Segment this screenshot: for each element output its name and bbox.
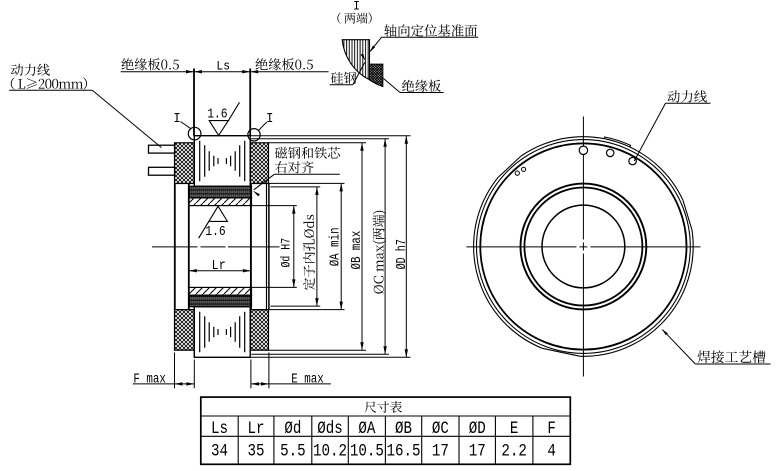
svg-text:ØB: ØB: [395, 419, 412, 439]
svg-text:ØA min: ØA min: [328, 227, 343, 266]
svg-text:Lr: Lr: [248, 419, 265, 439]
svg-text:Ls: Ls: [211, 419, 228, 439]
svg-text:1.6: 1.6: [207, 106, 227, 122]
svg-text:I: I: [266, 110, 273, 126]
svg-text:34: 34: [211, 441, 228, 461]
svg-text:Lr: Lr: [212, 257, 226, 273]
svg-text:2.2: 2.2: [501, 441, 527, 461]
svg-text:ØB max: ØB max: [349, 231, 364, 270]
svg-text:F max: F max: [133, 371, 166, 387]
svg-text:5.5: 5.5: [280, 441, 306, 461]
svg-text:E max: E max: [291, 371, 324, 387]
svg-text:F: F: [547, 419, 556, 439]
svg-text:I: I: [173, 110, 180, 126]
svg-text:ØD h7: ØD h7: [393, 239, 409, 269]
svg-text:10.2: 10.2: [313, 441, 347, 461]
svg-text:Ød H7: Ød H7: [278, 238, 294, 268]
svg-text:17: 17: [432, 441, 449, 461]
svg-text:17: 17: [469, 441, 486, 461]
svg-text:35: 35: [248, 441, 265, 461]
svg-text:1.6: 1.6: [205, 223, 225, 239]
svg-text:Ød: Ød: [284, 419, 301, 439]
svg-text:E: E: [510, 419, 519, 439]
svg-text:ØD: ØD: [469, 419, 486, 439]
svg-text:10.5: 10.5: [350, 441, 384, 461]
svg-text:I: I: [353, 0, 360, 14]
svg-text:ØC: ØC: [432, 419, 449, 439]
svg-text:ØA: ØA: [358, 419, 375, 439]
svg-text:Øds: Øds: [317, 419, 343, 439]
svg-text:Ls: Ls: [216, 59, 230, 74]
svg-text:16.5: 16.5: [387, 441, 421, 461]
svg-text:4: 4: [547, 441, 556, 461]
